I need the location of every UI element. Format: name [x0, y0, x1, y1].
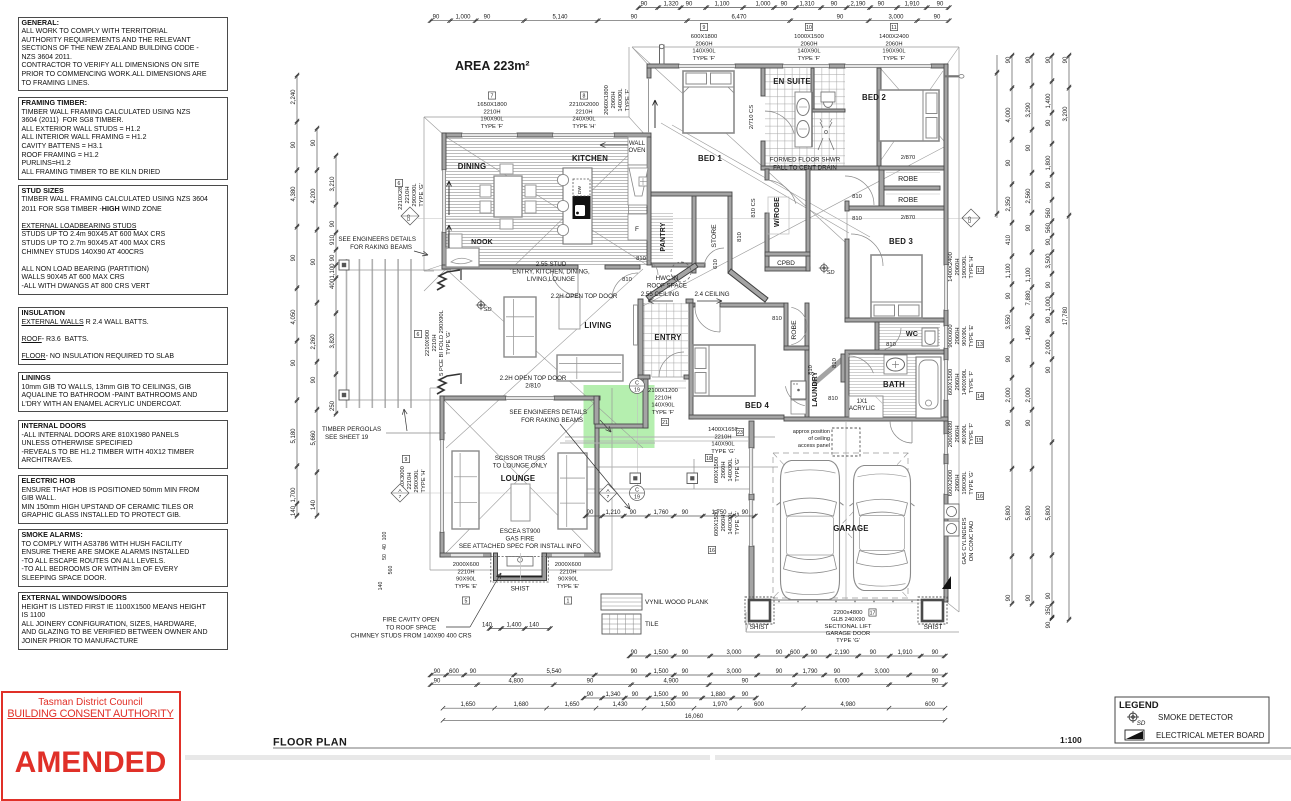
svg-text:11: 11: [891, 25, 896, 31]
svg-text:16: 16: [977, 494, 983, 500]
svg-text:TYPE 'F': TYPE 'F': [481, 124, 504, 130]
svg-text:2210H: 2210H: [407, 472, 413, 489]
svg-text:560: 560: [1046, 222, 1052, 233]
svg-text:C: C: [635, 488, 639, 494]
svg-text:90: 90: [932, 650, 939, 656]
svg-text:90: 90: [632, 692, 639, 698]
svg-text:LEGEND: LEGEND: [1119, 700, 1159, 711]
svg-text:1,430: 1,430: [612, 702, 628, 708]
svg-text:5 PCE BI FOLD 290X90L: 5 PCE BI FOLD 290X90L: [439, 309, 445, 376]
svg-text:2000X600: 2000X600: [453, 562, 479, 568]
svg-text:1:100: 1:100: [1060, 735, 1082, 745]
svg-text:2060H: 2060H: [955, 327, 961, 344]
svg-text:LAUNDRY: LAUNDRY: [812, 371, 819, 406]
svg-text:90: 90: [742, 692, 749, 698]
svg-text:TYPE 'H': TYPE 'H': [969, 255, 975, 278]
svg-text:TYPE 'H': TYPE 'H': [572, 124, 595, 130]
svg-text:GARAGE: GARAGE: [833, 524, 868, 533]
svg-text:23: 23: [737, 430, 743, 436]
svg-text:90X90L: 90X90L: [962, 423, 968, 444]
svg-text:2210H: 2210H: [432, 334, 438, 351]
svg-text:90: 90: [776, 669, 783, 675]
svg-text:TYPE 'G': TYPE 'G': [711, 449, 734, 455]
svg-text:90: 90: [1006, 292, 1012, 299]
svg-text:90: 90: [1063, 56, 1069, 63]
svg-text:90: 90: [587, 679, 594, 685]
svg-text:2060H: 2060H: [955, 474, 961, 491]
svg-text:SECTIONAL LIFT: SECTIONAL LIFT: [825, 624, 872, 630]
svg-text:16: 16: [709, 548, 715, 554]
svg-text:1400X90L: 1400X90L: [962, 368, 968, 395]
svg-text:90: 90: [1026, 224, 1032, 231]
svg-text:190X90L: 190X90L: [480, 117, 504, 123]
svg-text:100: 100: [382, 532, 388, 541]
svg-text:90: 90: [1026, 419, 1032, 426]
svg-text:600X2000: 600X2000: [948, 470, 954, 496]
svg-text:EN SUITE: EN SUITE: [773, 77, 811, 86]
svg-text:5,800: 5,800: [1046, 505, 1052, 521]
svg-text:TO LOUNGE ONLY: TO LOUNGE ONLY: [493, 463, 547, 470]
svg-text:DINING: DINING: [458, 162, 487, 171]
svg-text:19: 19: [634, 494, 640, 500]
svg-text:600: 600: [449, 669, 460, 675]
svg-text:5,800: 5,800: [1026, 505, 1032, 521]
svg-text:14: 14: [977, 394, 983, 400]
svg-text:15: 15: [976, 438, 982, 444]
svg-text:1,500: 1,500: [660, 702, 676, 708]
svg-text:2,350: 2,350: [1006, 196, 1012, 212]
svg-text:2060H: 2060H: [611, 91, 617, 108]
svg-text:2,000: 2,000: [1006, 387, 1012, 403]
svg-text:2,240: 2,240: [291, 89, 297, 105]
svg-text:90: 90: [1046, 238, 1052, 245]
svg-text:2060X680: 2060X680: [948, 421, 954, 447]
svg-text:TYPE 'F': TYPE 'F': [693, 56, 716, 62]
svg-text:1400X2400: 1400X2400: [948, 252, 954, 282]
svg-text:600: 600: [790, 650, 801, 656]
svg-text:SD: SD: [483, 307, 491, 313]
svg-text:SCISSOR TRUSS: SCISSOR TRUSS: [495, 455, 545, 462]
svg-text:90: 90: [932, 669, 939, 675]
svg-text:TYPE 'F': TYPE 'F': [625, 89, 631, 112]
svg-text:90: 90: [934, 15, 941, 21]
svg-text:90: 90: [811, 650, 818, 656]
svg-text:140: 140: [378, 582, 384, 591]
svg-text:ENTRY: ENTRY: [654, 333, 682, 342]
svg-text:3,000: 3,000: [726, 650, 742, 656]
svg-text:140: 140: [529, 622, 540, 628]
svg-text:3,290: 3,290: [1026, 102, 1032, 118]
svg-text:400: 400: [330, 278, 336, 289]
svg-text:ELECTRICAL METER BOARD: ELECTRICAL METER BOARD: [1156, 731, 1265, 740]
svg-text:140: 140: [311, 499, 317, 510]
svg-text:of ceiling: of ceiling: [808, 436, 830, 442]
svg-text:GAS FIRE: GAS FIRE: [506, 536, 535, 543]
svg-text:90: 90: [1026, 56, 1032, 63]
svg-text:TYPE 'E': TYPE 'E': [455, 584, 478, 590]
svg-text:2.2H OPEN TOP DOOR: 2.2H OPEN TOP DOOR: [500, 375, 567, 382]
svg-text:HWC IN: HWC IN: [656, 275, 679, 282]
svg-text:1,460: 1,460: [1026, 325, 1032, 341]
svg-text:140X90L: 140X90L: [728, 511, 734, 535]
svg-text:2060H: 2060H: [721, 514, 727, 531]
svg-text:7,880: 7,880: [1026, 290, 1032, 306]
svg-text:810: 810: [828, 396, 838, 402]
svg-text:TYPE 'F': TYPE 'F': [969, 423, 975, 446]
svg-text:2200x4800: 2200x4800: [833, 610, 863, 616]
svg-text:1,340: 1,340: [605, 692, 621, 698]
svg-text:2,560: 2,560: [1026, 188, 1032, 204]
svg-text:90: 90: [630, 510, 637, 516]
svg-text:CD: CD: [406, 214, 411, 221]
svg-text:BED 2: BED 2: [862, 93, 886, 102]
svg-text:TYPE 'E': TYPE 'E': [969, 325, 975, 348]
svg-text:140X90L: 140X90L: [797, 49, 821, 55]
svg-text:2060X1800: 2060X1800: [604, 85, 610, 115]
svg-text:140: 140: [482, 622, 493, 628]
svg-text:810: 810: [852, 216, 862, 222]
svg-text:TYPE 'F': TYPE 'F': [798, 56, 821, 62]
svg-text:90: 90: [1006, 355, 1012, 362]
svg-text:2060H: 2060H: [695, 41, 712, 47]
svg-text:FIRE CAVITY OPEN: FIRE CAVITY OPEN: [383, 617, 440, 624]
svg-text:1650X1800: 1650X1800: [477, 102, 507, 108]
svg-text:600: 600: [754, 702, 765, 708]
svg-text:STORE: STORE: [711, 224, 718, 248]
svg-text:CD: CD: [967, 216, 972, 223]
svg-text:access panel: access panel: [798, 443, 830, 449]
svg-text:1,650: 1,650: [460, 702, 476, 708]
svg-text:90: 90: [834, 669, 841, 675]
svg-text:2210H: 2210H: [405, 186, 411, 203]
svg-text:3,210: 3,210: [330, 176, 336, 192]
svg-text:90: 90: [831, 1, 838, 7]
svg-text:2/870: 2/870: [901, 215, 916, 221]
svg-text:21: 21: [662, 420, 668, 426]
svg-text:LOUNGE: LOUNGE: [501, 474, 536, 483]
svg-text:4,200: 4,200: [311, 188, 317, 204]
svg-text:810: 810: [636, 256, 646, 262]
svg-text:1,500: 1,500: [653, 692, 669, 698]
svg-text:3,500: 3,500: [1046, 253, 1052, 269]
svg-text:5,180: 5,180: [291, 428, 297, 444]
svg-text:3,000: 3,000: [726, 669, 742, 675]
svg-text:19: 19: [634, 387, 640, 393]
svg-text:90: 90: [937, 1, 944, 7]
svg-text:WALL: WALL: [629, 141, 646, 147]
svg-text:350: 350: [1046, 604, 1052, 615]
svg-text:SHIST: SHIST: [924, 624, 943, 631]
svg-text:BED 1: BED 1: [698, 154, 722, 163]
svg-text:240X90L: 240X90L: [572, 117, 596, 123]
svg-text:410: 410: [1006, 234, 1012, 245]
svg-text:2/710 CS: 2/710 CS: [749, 105, 755, 129]
svg-text:3,200: 3,200: [1063, 106, 1069, 122]
svg-text:SHIST: SHIST: [511, 586, 530, 593]
svg-text:290X90L: 290X90L: [414, 469, 420, 493]
svg-text:1,910: 1,910: [897, 650, 913, 656]
svg-text:2,260: 2,260: [311, 334, 317, 350]
svg-text:600X1800: 600X1800: [691, 34, 717, 40]
svg-text:90: 90: [631, 669, 638, 675]
svg-text:90: 90: [742, 510, 749, 516]
svg-text:9: 9: [703, 25, 706, 31]
svg-text:90: 90: [291, 141, 297, 148]
svg-text:6: 6: [398, 181, 401, 187]
svg-text:ON CONC PAD: ON CONC PAD: [969, 521, 975, 561]
svg-text:90: 90: [1006, 159, 1012, 166]
svg-text:GARAGE DOOR: GARAGE DOOR: [826, 631, 871, 637]
svg-text:1,310: 1,310: [799, 1, 815, 7]
svg-text:TYPE 'E': TYPE 'E': [557, 584, 580, 590]
svg-text:7: 7: [491, 94, 494, 100]
svg-text:1,400: 1,400: [1046, 93, 1052, 109]
svg-text:4,380: 4,380: [291, 186, 297, 202]
svg-text:CHIMNEY STUDS FROM 140X90 400: CHIMNEY STUDS FROM 140X90 400 CRS: [351, 633, 472, 640]
svg-text:90: 90: [1006, 594, 1012, 601]
svg-text:190X90L: 190X90L: [962, 471, 968, 495]
svg-text:3,000: 3,000: [888, 15, 904, 21]
svg-text:OVEN: OVEN: [628, 148, 645, 154]
svg-text:90: 90: [587, 510, 594, 516]
svg-text:90: 90: [330, 220, 336, 227]
svg-text:ENTRY, KITCHEN, DINING,: ENTRY, KITCHEN, DINING,: [512, 269, 590, 276]
svg-text:17: 17: [870, 611, 876, 617]
svg-text:1400X2400: 1400X2400: [879, 34, 909, 40]
svg-text:8: 8: [583, 94, 586, 100]
svg-text:810 CS: 810 CS: [751, 198, 757, 217]
svg-text:2060H: 2060H: [955, 258, 961, 275]
svg-text:1: 1: [567, 599, 570, 605]
svg-text:810: 810: [622, 277, 632, 283]
svg-text:5,540: 5,540: [546, 669, 562, 675]
svg-text:TYPE 'F': TYPE 'F': [969, 371, 975, 394]
svg-text:90: 90: [631, 15, 638, 21]
svg-text:90: 90: [484, 15, 491, 21]
svg-text:TYPE 'G': TYPE 'G': [735, 458, 741, 481]
svg-text:1,700: 1,700: [291, 487, 297, 503]
svg-text:90X90L: 90X90L: [962, 325, 968, 346]
svg-text:1,800: 1,800: [1046, 155, 1052, 171]
svg-text:50: 50: [382, 554, 388, 560]
svg-text:AREA 223m²: AREA 223m²: [455, 59, 530, 73]
svg-text:4,980: 4,980: [840, 702, 856, 708]
svg-text:TYPE 'H': TYPE 'H': [421, 469, 427, 492]
svg-text:3,820: 3,820: [330, 333, 336, 349]
svg-text:SMOKE DETECTOR: SMOKE DETECTOR: [1158, 713, 1233, 722]
svg-text:90X90L: 90X90L: [558, 577, 579, 583]
svg-text:2,190: 2,190: [834, 650, 850, 656]
svg-text:3,000: 3,000: [874, 669, 890, 675]
svg-text:W/ROBE: W/ROBE: [774, 197, 781, 227]
svg-text:560: 560: [1046, 207, 1052, 218]
svg-text:1,100: 1,100: [714, 1, 730, 7]
svg-text:190X90L: 190X90L: [962, 255, 968, 279]
svg-text:90: 90: [742, 679, 749, 685]
svg-text:2210X2000: 2210X2000: [569, 102, 599, 108]
svg-text:2.55 CEILING: 2.55 CEILING: [641, 291, 680, 298]
svg-text:140X90L: 140X90L: [618, 88, 624, 112]
svg-text:810: 810: [737, 232, 743, 242]
svg-text:1,880: 1,880: [710, 692, 726, 698]
svg-text:2,190: 2,190: [850, 1, 866, 7]
svg-text:90: 90: [311, 258, 317, 265]
svg-text:90: 90: [682, 669, 689, 675]
svg-text:TYPE 'G': TYPE 'G': [836, 638, 860, 644]
svg-text:90: 90: [291, 359, 297, 366]
svg-text:TYPE 'F': TYPE 'F': [883, 56, 906, 62]
svg-text:2210H: 2210H: [483, 109, 500, 115]
svg-text:810: 810: [772, 316, 782, 322]
svg-text:DW: DW: [577, 186, 583, 194]
svg-text:1,100: 1,100: [1026, 267, 1032, 283]
svg-text:140X90L: 140X90L: [651, 403, 675, 409]
svg-text:SEE SHEET 19: SEE SHEET 19: [325, 434, 369, 441]
svg-text:90: 90: [470, 669, 477, 675]
svg-text:C: C: [635, 381, 639, 387]
svg-text:FOR RAKING BEAMS: FOR RAKING BEAMS: [521, 417, 583, 424]
svg-text:FALL TO CENT DRAIN: FALL TO CENT DRAIN: [773, 165, 837, 172]
svg-text:810: 810: [886, 342, 896, 348]
svg-text:90: 90: [686, 1, 693, 7]
svg-text:FORMED FLOOR SHWR: FORMED FLOOR SHWR: [770, 157, 841, 164]
svg-text:5,800: 5,800: [1006, 505, 1012, 521]
svg-text:3,550: 3,550: [1006, 314, 1012, 330]
svg-text:6: 6: [417, 332, 420, 338]
svg-text:90: 90: [870, 650, 877, 656]
svg-text:F: F: [635, 226, 639, 233]
svg-text:FOR RAKING BEAMS: FOR RAKING BEAMS: [350, 244, 412, 251]
svg-text:2210H: 2210H: [575, 109, 592, 115]
svg-text:2210H: 2210H: [654, 395, 671, 401]
svg-text:90: 90: [587, 692, 594, 698]
svg-text:1X1: 1X1: [857, 399, 868, 405]
svg-text:SHIST: SHIST: [750, 624, 769, 631]
svg-text:2.2H OPEN TOP DOOR: 2.2H OPEN TOP DOOR: [551, 293, 618, 300]
svg-text:SD: SD: [826, 270, 834, 276]
svg-text:TILE: TILE: [645, 621, 659, 628]
svg-text:WC: WC: [906, 329, 918, 338]
svg-text:18: 18: [706, 456, 712, 462]
svg-text:SD: SD: [1137, 720, 1146, 727]
svg-text:9: 9: [405, 457, 408, 463]
svg-text:5,140: 5,140: [552, 15, 568, 21]
svg-text:90: 90: [1026, 144, 1032, 151]
svg-text:90: 90: [1046, 366, 1052, 373]
svg-text:90: 90: [1026, 594, 1032, 601]
svg-text:90: 90: [682, 650, 689, 656]
svg-text:2060H: 2060H: [721, 461, 727, 478]
svg-text:4,900: 4,900: [663, 679, 679, 685]
svg-text:90: 90: [291, 254, 297, 261]
svg-text:2060H: 2060H: [955, 373, 961, 390]
svg-text:2.55 STUD: 2.55 STUD: [536, 261, 567, 268]
svg-text:1,680: 1,680: [513, 702, 529, 708]
svg-text:810: 810: [852, 194, 862, 200]
svg-text:FLOOR PLAN: FLOOR PLAN: [273, 737, 347, 749]
svg-text:TIMBER PERGOLAS: TIMBER PERGOLAS: [322, 426, 381, 433]
svg-text:LIVING: LIVING: [584, 321, 611, 330]
svg-text:2210H: 2210H: [457, 569, 474, 575]
svg-text:600X1500: 600X1500: [948, 369, 954, 395]
svg-text:TYPE 'G': TYPE 'G': [446, 331, 452, 354]
svg-text:NOOK: NOOK: [471, 239, 493, 246]
svg-text:ROBE: ROBE: [898, 197, 918, 204]
svg-text:1,000: 1,000: [455, 15, 471, 21]
svg-text:KITCHEN: KITCHEN: [572, 154, 608, 163]
svg-text:90: 90: [434, 669, 441, 675]
svg-text:5: 5: [465, 599, 468, 605]
svg-text:810: 810: [832, 358, 838, 368]
svg-text:1,210: 1,210: [605, 510, 621, 516]
svg-text:4,800: 4,800: [508, 679, 524, 685]
svg-text:90: 90: [776, 650, 783, 656]
svg-text:1,790: 1,790: [802, 669, 818, 675]
svg-text:SEE ENGINEERS DETAILS: SEE ENGINEERS DETAILS: [338, 236, 416, 243]
svg-text:13: 13: [977, 342, 983, 348]
svg-text:1,000: 1,000: [755, 1, 771, 7]
svg-text:90: 90: [1046, 119, 1052, 126]
svg-text:290X90L: 290X90L: [412, 183, 418, 207]
svg-text:GLB 240X90: GLB 240X90: [831, 617, 865, 623]
svg-text:PANTRY: PANTRY: [660, 222, 667, 251]
svg-text:90: 90: [1006, 56, 1012, 63]
svg-text:90: 90: [433, 15, 440, 21]
svg-text:BATH: BATH: [883, 380, 905, 389]
svg-text:90: 90: [1046, 56, 1052, 63]
svg-text:140X90L: 140X90L: [692, 49, 716, 55]
svg-text:90: 90: [434, 679, 441, 685]
svg-text:90: 90: [878, 1, 885, 7]
svg-text:90: 90: [932, 679, 939, 685]
svg-text:2,000: 2,000: [1026, 387, 1032, 403]
svg-text:2060H: 2060H: [885, 41, 902, 47]
svg-text:600: 600: [925, 702, 936, 708]
svg-text:90: 90: [1046, 592, 1052, 599]
svg-text:140X90L: 140X90L: [711, 442, 735, 448]
svg-text:BED 3: BED 3: [889, 237, 913, 246]
svg-text:4,050: 4,050: [291, 309, 297, 325]
svg-text:90: 90: [781, 1, 788, 7]
svg-text:7: 7: [399, 494, 402, 500]
svg-text:ROBE: ROBE: [898, 176, 918, 183]
svg-text:90: 90: [1046, 181, 1052, 188]
svg-text:2210H: 2210H: [559, 569, 576, 575]
svg-text:1,320: 1,320: [663, 1, 679, 7]
svg-text:ACRYLIC: ACRYLIC: [849, 406, 876, 412]
svg-text:17,780: 17,780: [1063, 306, 1069, 325]
svg-text:560: 560: [388, 566, 394, 575]
svg-text:GAS CYLINDERS: GAS CYLINDERS: [962, 517, 968, 564]
svg-text:1,910: 1,910: [904, 1, 920, 7]
svg-text:90: 90: [330, 254, 336, 261]
svg-text:1400X1650: 1400X1650: [708, 427, 738, 433]
svg-text:BED 4: BED 4: [745, 401, 769, 410]
svg-text:2100X1200: 2100X1200: [648, 388, 678, 394]
svg-text:CPBD: CPBD: [777, 260, 795, 267]
svg-text:90: 90: [311, 376, 317, 383]
svg-text:SEE ENGINEERS DETAILS: SEE ENGINEERS DETAILS: [509, 409, 587, 416]
svg-text:ROBE: ROBE: [791, 320, 798, 340]
svg-text:1,500: 1,500: [653, 650, 669, 656]
svg-text:140: 140: [291, 505, 297, 516]
svg-text:600X1500: 600X1500: [714, 457, 720, 483]
svg-text:TO ROOF SPACE: TO ROOF SPACE: [386, 625, 436, 632]
svg-text:90: 90: [1046, 316, 1052, 323]
svg-text:2210H: 2210H: [714, 434, 731, 440]
svg-text:1,100: 1,100: [1006, 263, 1012, 279]
svg-text:90X90L: 90X90L: [456, 577, 477, 583]
